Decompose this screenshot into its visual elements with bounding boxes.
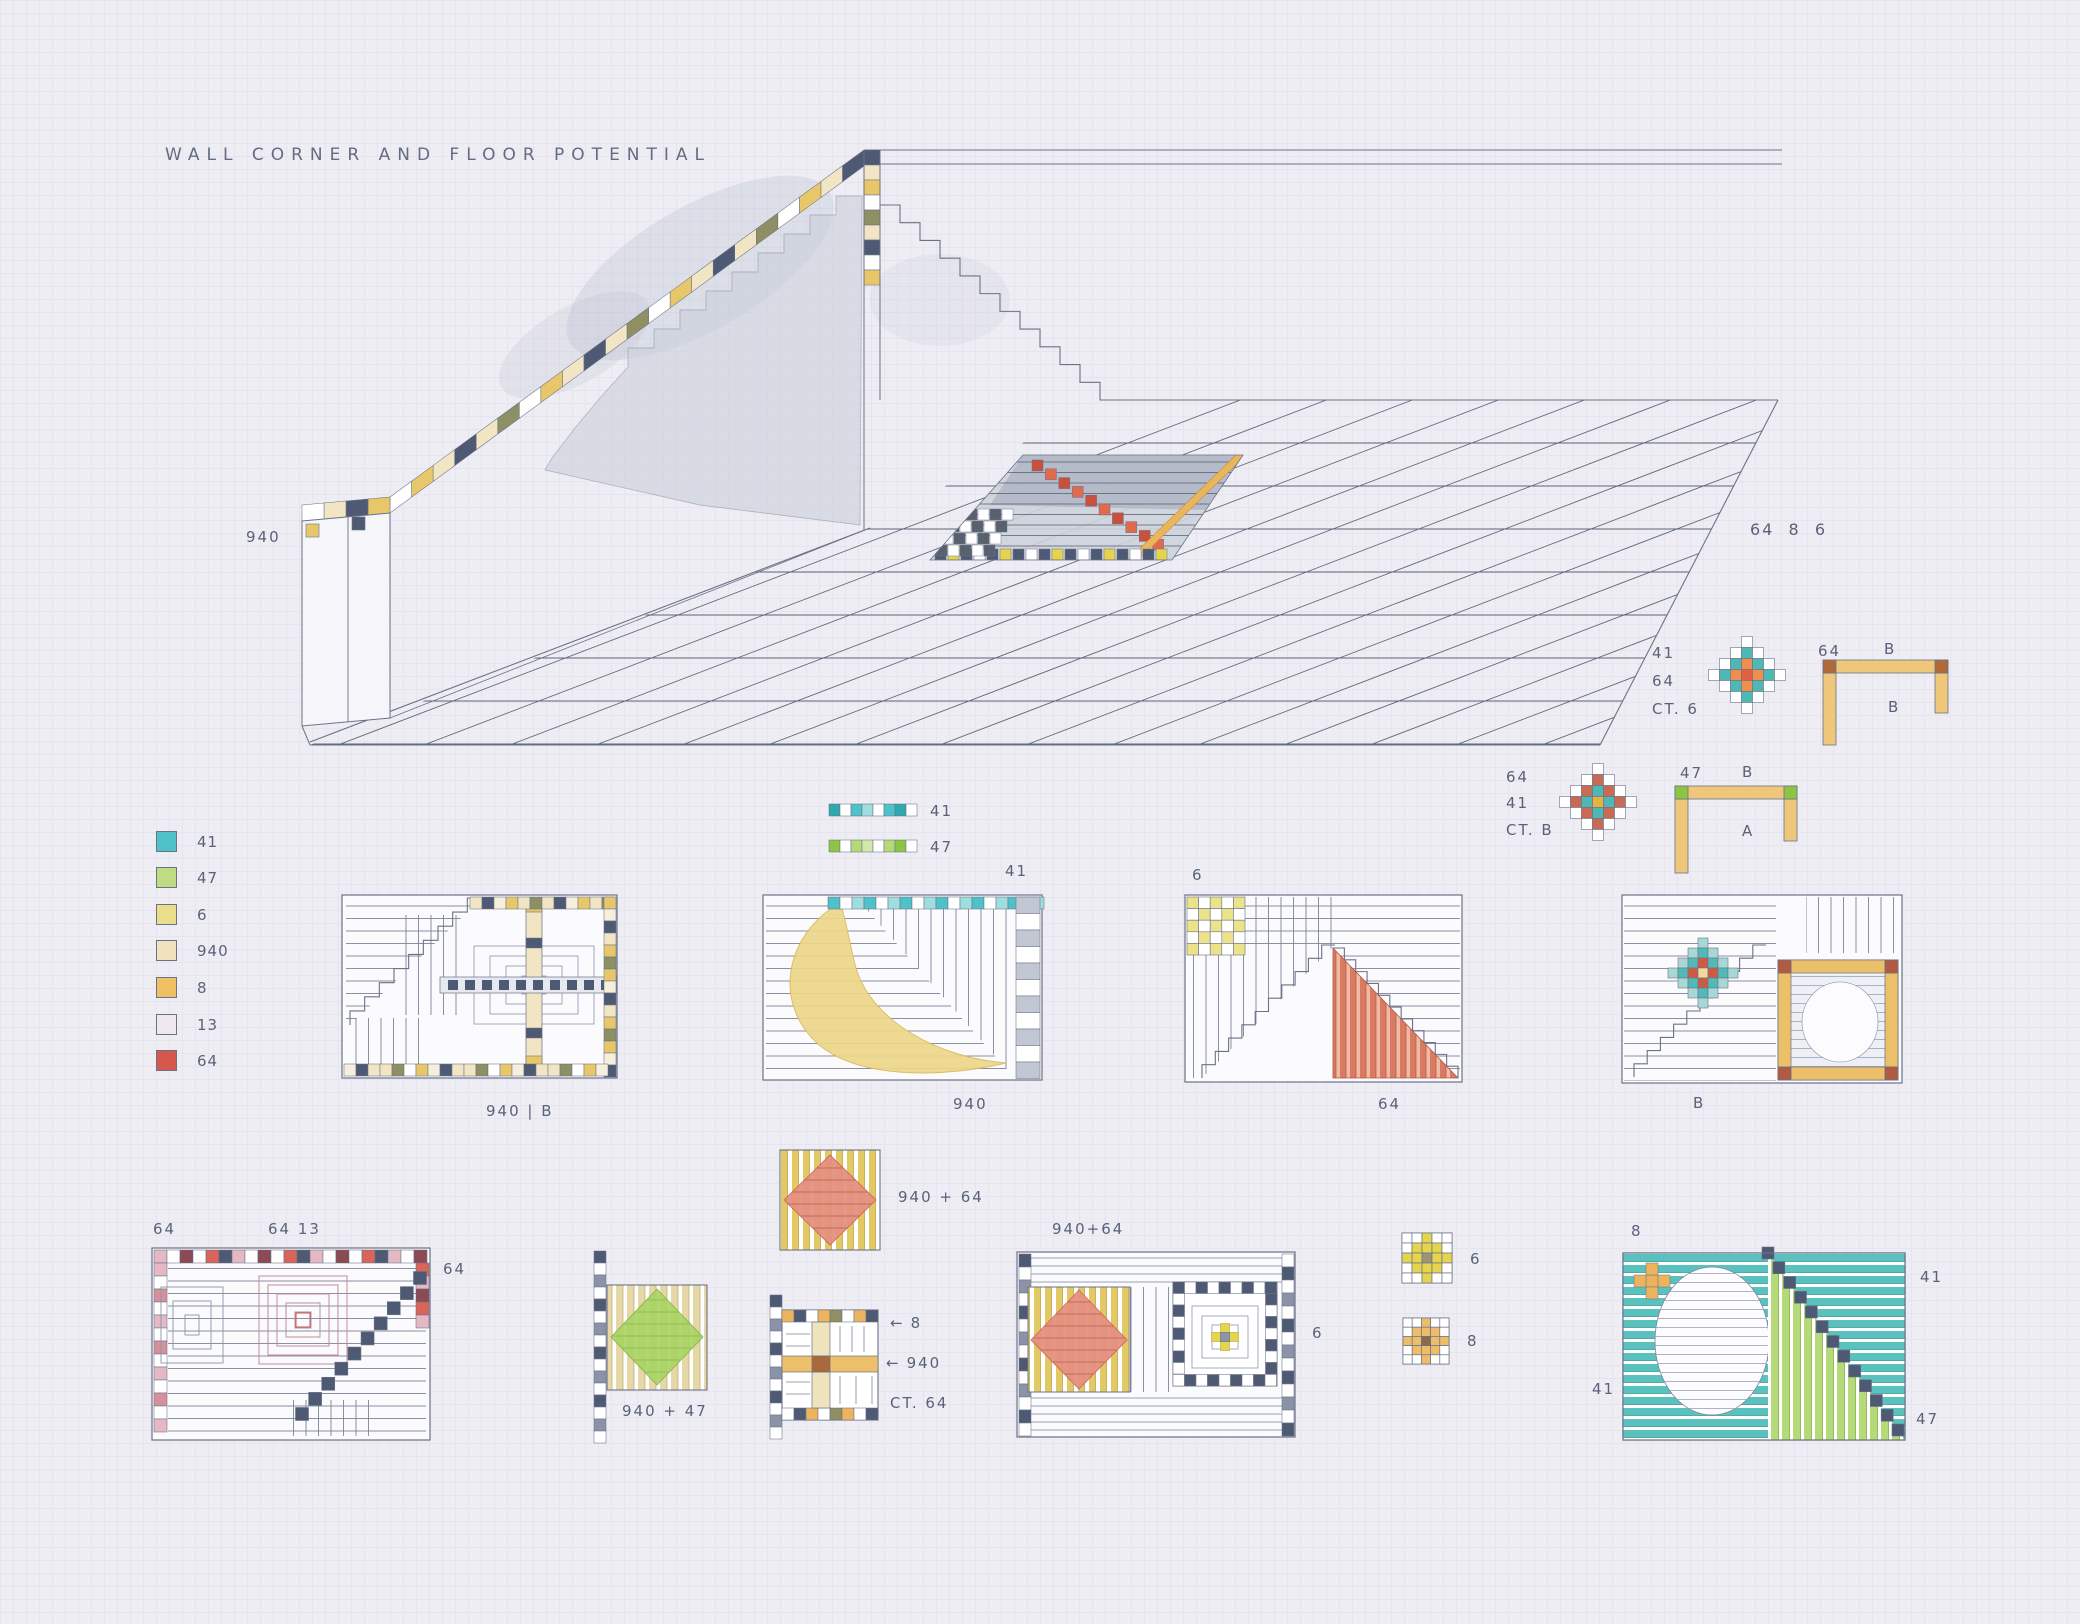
strip-47-label: 47 — [930, 834, 953, 861]
wall-end-cap — [302, 513, 390, 745]
detail-1-notes: 41 64 CT. 6 — [1652, 640, 1699, 723]
grid-sq-arrow-940: ←940 — [886, 1350, 941, 1377]
panel-2-top-label: 41 — [1005, 858, 1028, 885]
panel-940-64-big — [1017, 1252, 1295, 1437]
drawing-layer — [0, 0, 2080, 1624]
panel2f-right-bottom-label: 47 — [1916, 1406, 1939, 1433]
panel-b — [1622, 895, 1902, 1083]
detail-2-notes: 64 41 CT. B — [1506, 764, 1554, 843]
bracket-a — [1675, 786, 1797, 873]
sq-940-64 — [780, 1150, 880, 1250]
small-square-8-label: 8 — [1467, 1328, 1479, 1355]
isometric-drawing — [310, 139, 1782, 742]
floor-grid — [290, 381, 2080, 748]
panel-4-caption: B — [1693, 1090, 1705, 1117]
small-square-6 — [1402, 1233, 1452, 1283]
sq-940-47-caption: 940 + 47 — [622, 1398, 708, 1425]
legend-swatch-47 — [156, 867, 177, 888]
legend-item-940: 940 — [156, 940, 229, 961]
small-square-8 — [1403, 1318, 1449, 1364]
panel-3-top-label: 6 — [1192, 862, 1204, 889]
page-title: WALL CORNER AND FLOOR POTENTIAL — [165, 140, 711, 171]
legend-code-8: 8 — [197, 979, 208, 997]
panel2a-top-left-label: 64 — [153, 1216, 176, 1243]
bracket-2-top-right-label: B — [1742, 759, 1754, 786]
bracket-1-below-label: B — [1888, 694, 1900, 721]
panel-940 — [763, 895, 1044, 1080]
legend-code-47: 47 — [197, 869, 218, 887]
legend-item-41: 41 — [156, 831, 218, 852]
legend-item-47: 47 — [156, 867, 218, 888]
panel-41-47 — [1623, 1247, 1905, 1440]
panel2d-right-label: 6 — [1312, 1320, 1324, 1347]
panel-940b — [342, 895, 617, 1078]
bracket-2-top-left-label: 47 — [1680, 760, 1703, 787]
drawing-canvas: WALL CORNER AND FLOOR POTENTIAL 940 64 8… — [0, 0, 2080, 1624]
legend-swatch-13 — [156, 1014, 177, 1035]
left-arrow-icon: ← — [886, 1354, 901, 1372]
left-arrow-icon: ← — [890, 1314, 905, 1332]
small-square-6-label: 6 — [1470, 1246, 1482, 1273]
bracket-1-top-right-label: B — [1884, 636, 1896, 663]
legend-swatch-8 — [156, 977, 177, 998]
strip-41-label: 41 — [930, 798, 953, 825]
legend-swatch-940 — [156, 940, 177, 961]
panel2d-top-label: 940+64 — [1052, 1216, 1124, 1243]
panel2f-right-top-label: 41 — [1920, 1264, 1943, 1291]
legend-item-8: 8 — [156, 977, 208, 998]
panel-64 — [1185, 895, 1462, 1082]
sq-940-64-caption: 940 + 64 — [898, 1184, 984, 1211]
panel-64-13 — [152, 1248, 430, 1440]
diamond-ct6 — [1709, 637, 1786, 714]
bracket-1-top-left-label: 64 — [1818, 638, 1841, 665]
panel-2-caption: 940 — [953, 1091, 988, 1118]
strip-41 — [829, 804, 917, 816]
grid-sq-arrow-8: ←8 — [890, 1310, 922, 1337]
legend-swatch-64 — [156, 1050, 177, 1071]
panel2f-top-label: 8 — [1631, 1218, 1643, 1245]
strip-47 — [829, 840, 917, 852]
bracket-b — [1823, 660, 1948, 745]
corner-column — [864, 150, 880, 530]
legend-swatch-6 — [156, 904, 177, 925]
grid-sq-caption: CT. 64 — [890, 1390, 948, 1417]
legend-code-41: 41 — [197, 833, 218, 851]
grid-ct64 — [770, 1295, 878, 1439]
floor-inset-pattern — [900, 455, 1257, 560]
diamond-ctb — [1560, 764, 1637, 841]
panel-1-caption: 940 | B — [486, 1098, 554, 1125]
panel2f-left-bottom-label: 41 — [1592, 1376, 1615, 1403]
panel2a-top-center-label: 64 13 — [268, 1216, 321, 1243]
legend-swatch-41 — [156, 831, 177, 852]
legend-code-13: 13 — [197, 1016, 218, 1034]
panel-3-caption: 64 — [1378, 1091, 1401, 1118]
legend-code-64: 64 — [197, 1052, 218, 1070]
legend-code-6: 6 — [197, 906, 208, 924]
panel2a-right-label: 64 — [443, 1256, 466, 1283]
legend-item-13: 13 — [156, 1014, 218, 1035]
legend-item-6: 6 — [156, 904, 208, 925]
legend-code-940: 940 — [197, 942, 229, 960]
floor-note-64-8-6: 64 8 6 — [1750, 516, 1827, 545]
bracket-2-below-label: A — [1742, 818, 1754, 845]
wall-label-940: 940 — [246, 524, 281, 551]
legend-item-64: 64 — [156, 1050, 218, 1071]
